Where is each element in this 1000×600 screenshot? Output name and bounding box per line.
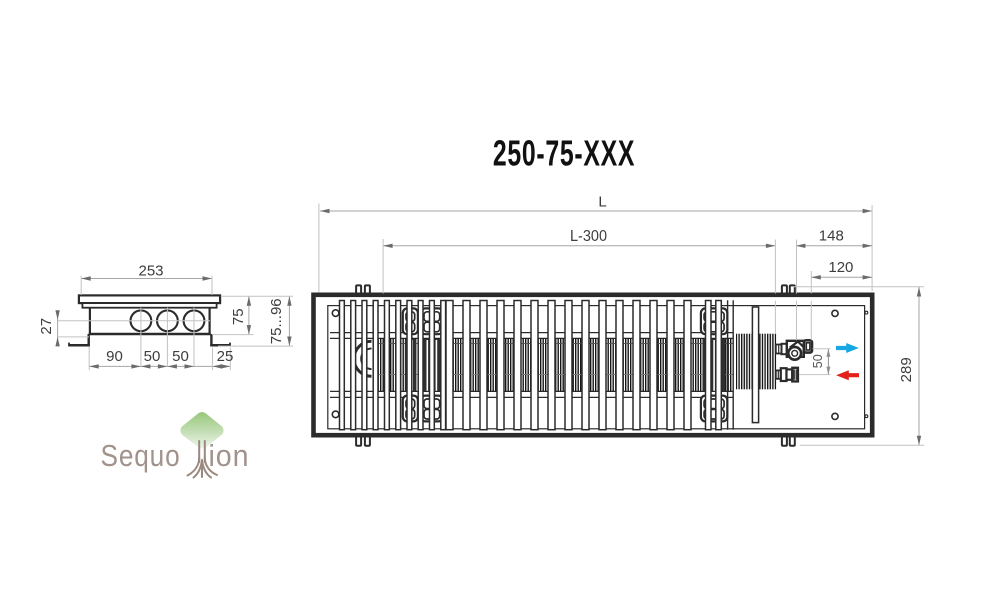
svg-text:75...96: 75...96 (268, 298, 285, 344)
svg-text:50: 50 (144, 348, 161, 365)
svg-text:75: 75 (230, 308, 247, 325)
svg-text:Sequo: Sequo (101, 439, 181, 473)
svg-text:148: 148 (819, 228, 844, 245)
svg-text:289: 289 (898, 357, 915, 382)
svg-text:25: 25 (217, 348, 234, 365)
svg-text:253: 253 (138, 262, 163, 279)
svg-text:50: 50 (811, 354, 825, 368)
svg-text:L-300: L-300 (570, 228, 607, 245)
svg-text:50: 50 (172, 348, 189, 365)
svg-text:90: 90 (106, 348, 123, 365)
svg-text:27: 27 (38, 318, 55, 335)
svg-text:120: 120 (828, 259, 853, 276)
svg-text:ion: ion (209, 439, 250, 473)
svg-text:250-75-XXX: 250-75-XXX (493, 133, 635, 174)
svg-text:L: L (598, 194, 606, 211)
